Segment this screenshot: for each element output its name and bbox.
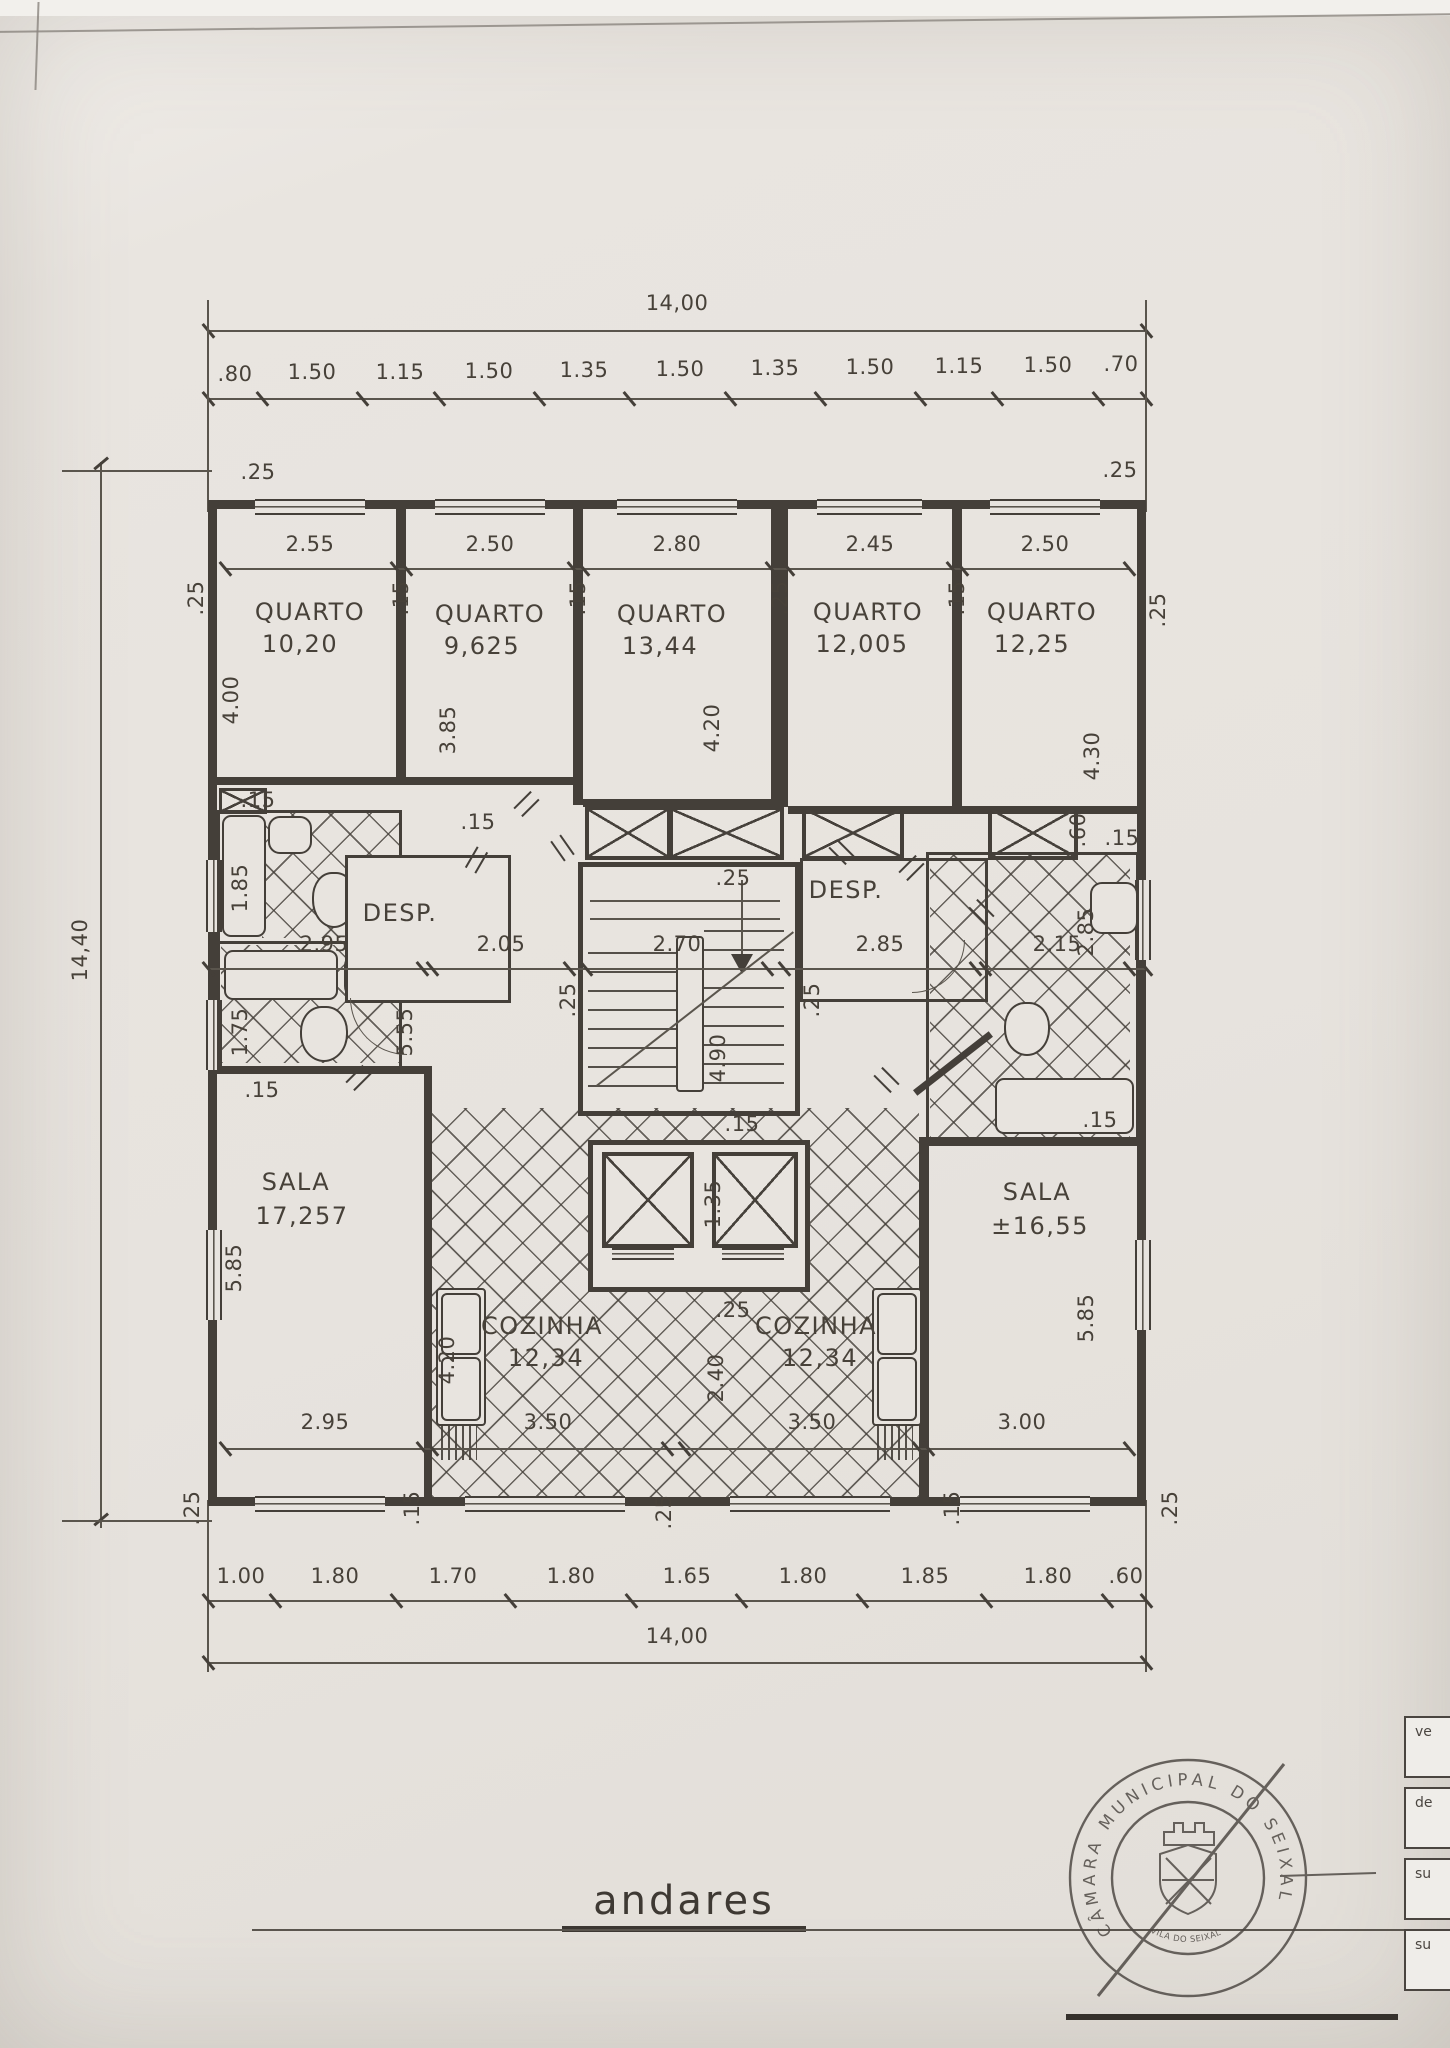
- dim-label: .25: [184, 581, 208, 616]
- dim-label: .15: [389, 581, 413, 616]
- dim-label: .15: [945, 581, 969, 616]
- window: [206, 1230, 222, 1320]
- dim-tick: [724, 391, 737, 406]
- elevator-door: [722, 1248, 784, 1260]
- dim-label: .25: [180, 1491, 204, 1526]
- dim-label: 1.80: [547, 1564, 596, 1588]
- dim-label: .25: [1103, 458, 1138, 482]
- dim-label: .15: [400, 1491, 424, 1526]
- dim-label: .15: [245, 1078, 280, 1102]
- dim-label: 1.85: [228, 864, 252, 913]
- drawing-title: andares: [593, 1878, 775, 1924]
- dim-label: .25: [716, 1298, 751, 1322]
- form-field-label: su: [1415, 1866, 1431, 1882]
- washbasin: [268, 816, 312, 854]
- dim-label: .15: [940, 1491, 964, 1526]
- elevator-door: [612, 1248, 674, 1260]
- dim-tick: [1123, 561, 1136, 576]
- room-area: 12,34: [508, 1344, 584, 1372]
- vent-shaft: [802, 806, 904, 860]
- dim-label: 5.55: [393, 1008, 417, 1057]
- dim-tick: [991, 391, 1004, 406]
- stamp-tail-line: [1280, 1873, 1376, 1876]
- scanned-floor-plan-page: { "page": { "title": "andares" }, "dims"…: [0, 0, 1450, 2048]
- extension-line: [1145, 300, 1147, 512]
- dim-label: 5.85: [1074, 1294, 1098, 1343]
- form-field: ve: [1404, 1716, 1450, 1778]
- dim-tick: [623, 391, 636, 406]
- door-mark: [513, 791, 539, 817]
- dim-line-bottom-total: [208, 1662, 1146, 1664]
- dim-label: .15: [1105, 826, 1140, 850]
- dim-label: 1.50: [656, 357, 705, 381]
- dim-label: 1.80: [1024, 1564, 1073, 1588]
- window: [255, 499, 365, 515]
- dim-label: 4.90: [706, 1034, 730, 1083]
- dim-label: 4.20: [700, 704, 724, 753]
- dim-label: 2.85: [1074, 908, 1098, 957]
- dim-label: 2.55: [286, 532, 335, 556]
- dim-label: 2.45: [846, 532, 895, 556]
- dim-label: 3.50: [524, 1410, 573, 1434]
- dim-tick: [914, 391, 927, 406]
- vent-shaft: [669, 806, 784, 860]
- dim-tick: [563, 961, 576, 976]
- dim-label: .15: [566, 581, 590, 616]
- form-field: su: [1404, 1858, 1450, 1920]
- dim-label: .80: [218, 362, 253, 386]
- dim-tick: [219, 1441, 232, 1456]
- room-label: QUARTO: [813, 598, 923, 626]
- window: [435, 499, 545, 515]
- window: [465, 1496, 625, 1512]
- dim-label: .15: [461, 810, 496, 834]
- dim-tick: [433, 391, 446, 406]
- dim-label: 1.80: [779, 1564, 828, 1588]
- interior-wall: [771, 509, 788, 805]
- room-label: COZINHA: [481, 1312, 603, 1340]
- form-field: su: [1404, 1929, 1450, 1991]
- stair-landing-line: [590, 900, 780, 902]
- dim-label: 4.30: [1080, 732, 1104, 781]
- kitchen-sink: [877, 1293, 917, 1355]
- form-field-label: su: [1415, 1937, 1431, 1953]
- window: [730, 1496, 890, 1512]
- dim-label: 1.75: [228, 1008, 252, 1057]
- dim-tick: [625, 1593, 638, 1608]
- dim-label: 2.50: [466, 532, 515, 556]
- dim-line-top-total: [208, 330, 1146, 332]
- dim-label: .15: [1083, 1108, 1118, 1132]
- dim-label: 1.80: [311, 1564, 360, 1588]
- dim-tick: [814, 391, 827, 406]
- toilet: [1004, 1002, 1050, 1056]
- window: [617, 499, 737, 515]
- dim-label: .25: [652, 1495, 676, 1530]
- window: [817, 499, 922, 515]
- dim-label: 2.95: [301, 1410, 350, 1434]
- extension-line: [62, 470, 212, 472]
- extension-line: [1145, 1500, 1147, 1672]
- dim-tick: [219, 561, 232, 576]
- room-label: SALA: [1003, 1178, 1071, 1206]
- dim-tick: [1101, 1593, 1114, 1608]
- stamp-strike-line: [1098, 1764, 1284, 1996]
- door-mark: [873, 1067, 899, 1093]
- dim-tick: [356, 391, 369, 406]
- side-form: ve de su su: [1404, 1716, 1450, 2000]
- dim-label: 3.00: [998, 1410, 1047, 1434]
- dim-label: .25: [1158, 1491, 1182, 1526]
- stamp-inner-ring: [1112, 1802, 1264, 1954]
- room-label-desp-left: DESP.: [363, 899, 438, 927]
- interior-wall: [952, 509, 962, 811]
- dim-label: .25: [800, 983, 824, 1018]
- interior-wall: [424, 1066, 432, 1506]
- room-area: 9,625: [444, 632, 520, 660]
- dim-tick: [256, 391, 269, 406]
- dim-label: 2.50: [1021, 532, 1070, 556]
- stair-landing-line: [590, 918, 780, 920]
- vent-shaft: [585, 806, 671, 860]
- dim-label: 2.40: [704, 1354, 728, 1403]
- dim-label: 1.00: [217, 1564, 266, 1588]
- room-area: 12,005: [816, 630, 909, 658]
- kitchen-sink: [877, 1357, 917, 1421]
- room-area: 12,25: [994, 630, 1070, 658]
- form-field: de: [1404, 1787, 1450, 1849]
- dim-left-total: 14,40: [68, 919, 92, 982]
- dim-tick: [1092, 391, 1105, 406]
- dim-line-top-chain: [208, 398, 1146, 400]
- window: [1135, 1240, 1151, 1330]
- dim-label: .25: [556, 983, 580, 1018]
- dim-label: 1.85: [901, 1564, 950, 1588]
- dim-line-mid: [208, 968, 1146, 970]
- dim-tick: [504, 1593, 517, 1608]
- dim-label: .60: [1109, 1564, 1144, 1588]
- dim-label: 1.15: [376, 360, 425, 384]
- dim-label: 2.85: [856, 932, 905, 956]
- room-label: QUARTO: [987, 598, 1097, 626]
- dim-label: 4.20: [435, 1336, 459, 1385]
- dim-label: 5.85: [222, 1244, 246, 1293]
- form-field-label: ve: [1415, 1724, 1432, 1740]
- stamp-crown: [1164, 1823, 1214, 1845]
- interior-wall: [573, 509, 583, 805]
- dim-label: .25: [241, 460, 276, 484]
- dim-label: 1.50: [1024, 353, 1073, 377]
- room-label: QUARTO: [435, 600, 545, 628]
- room-label: SALA: [262, 1168, 330, 1196]
- dim-bottom-total: 14,00: [646, 1624, 709, 1648]
- scan-top-margin: [0, 0, 1450, 16]
- dim-label: .25: [1146, 593, 1170, 628]
- dim-line-left-total: [100, 462, 102, 1528]
- elevator-shaft: [602, 1152, 694, 1248]
- dim-label: 1.15: [935, 354, 984, 378]
- room-label: QUARTO: [617, 600, 727, 628]
- room-area: 13,44: [622, 632, 698, 660]
- room-label-desp-right: DESP.: [809, 876, 884, 904]
- stamp-outer-ring: [1070, 1760, 1306, 1996]
- dim-label: 2.70: [653, 932, 702, 956]
- form-field-label: de: [1415, 1795, 1433, 1811]
- dim-label: .15: [725, 1112, 760, 1136]
- dim-label: 3.50: [788, 1410, 837, 1434]
- desp-left-outline: [345, 855, 511, 1003]
- door-mark: [550, 834, 574, 861]
- svg-text:VILA DO SEIXAL: VILA DO SEIXAL: [1149, 1926, 1223, 1945]
- room-area: 12,34: [782, 1344, 858, 1372]
- dim-label: 1.50: [465, 359, 514, 383]
- dim-line-bottom-chain: [208, 1600, 1146, 1602]
- window: [990, 499, 1100, 515]
- dim-label: 1.70: [429, 1564, 478, 1588]
- window: [255, 1496, 385, 1512]
- dim-tick: [269, 1593, 282, 1608]
- dim-label: 2.80: [653, 532, 702, 556]
- stair-direction-line: [741, 880, 743, 956]
- dim-tick: [856, 1593, 869, 1608]
- room-area: 17,257: [256, 1202, 349, 1230]
- room-area: 10,20: [262, 630, 338, 658]
- interior-wall: [396, 509, 406, 783]
- dim-tick: [1123, 1441, 1136, 1456]
- dim-label: 1.65: [663, 1564, 712, 1588]
- toilet: [300, 1006, 348, 1062]
- municipal-stamp: CÂMARA MUNICIPAL DO SEIXAL VILA DO SEIXA…: [1046, 1746, 1382, 2012]
- dim-top-total: 14,00: [646, 291, 709, 315]
- dim-tick: [735, 1593, 748, 1608]
- bathtub: [224, 950, 338, 1000]
- dim-label: .60: [1066, 813, 1090, 848]
- dim-label: .15: [241, 788, 276, 812]
- dim-label: 1.50: [846, 355, 895, 379]
- dim-label: 3.85: [436, 706, 460, 755]
- dim-label: 1.50: [288, 360, 337, 384]
- interior-wall: [217, 777, 583, 785]
- room-area: ±16,55: [991, 1212, 1089, 1240]
- dim-label: 1.35: [701, 1180, 725, 1229]
- dim-label: 4.00: [219, 676, 243, 725]
- room-label: COZINHA: [755, 1312, 877, 1340]
- dim-tick: [390, 1593, 403, 1608]
- dim-line-bottom-widths: [225, 1448, 1129, 1450]
- room-label: QUARTO: [255, 598, 365, 626]
- scan-bottom-rule: [1066, 2014, 1398, 2020]
- dim-label: .70: [1104, 352, 1139, 376]
- dim-label: .25: [768, 581, 792, 616]
- kitchen-drainer: [877, 1426, 913, 1460]
- kitchen-drainer: [441, 1426, 477, 1460]
- dim-line-room-widths: [225, 568, 1129, 570]
- stamp-banner-text: VILA DO SEIXAL: [1149, 1926, 1223, 1945]
- dim-tick: [533, 391, 546, 406]
- dim-tick: [980, 1593, 993, 1608]
- dim-label: 2.05: [477, 932, 526, 956]
- extension-line: [207, 1500, 209, 1672]
- window: [960, 1496, 1090, 1512]
- dim-label: 1.35: [751, 356, 800, 380]
- dim-label: 1.35: [560, 358, 609, 382]
- dim-label: 2.95: [300, 932, 349, 956]
- extension-line: [207, 300, 209, 512]
- dim-label: .25: [716, 866, 751, 890]
